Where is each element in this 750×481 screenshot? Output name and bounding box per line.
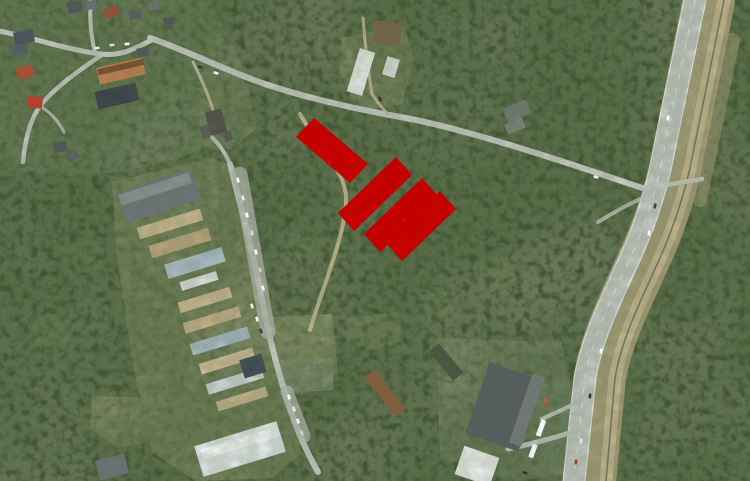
aerial-map-viewport[interactable]	[0, 0, 750, 481]
car	[579, 438, 582, 443]
car	[599, 348, 602, 353]
satellite-image	[0, 0, 750, 481]
car	[574, 459, 577, 464]
car	[588, 393, 591, 398]
